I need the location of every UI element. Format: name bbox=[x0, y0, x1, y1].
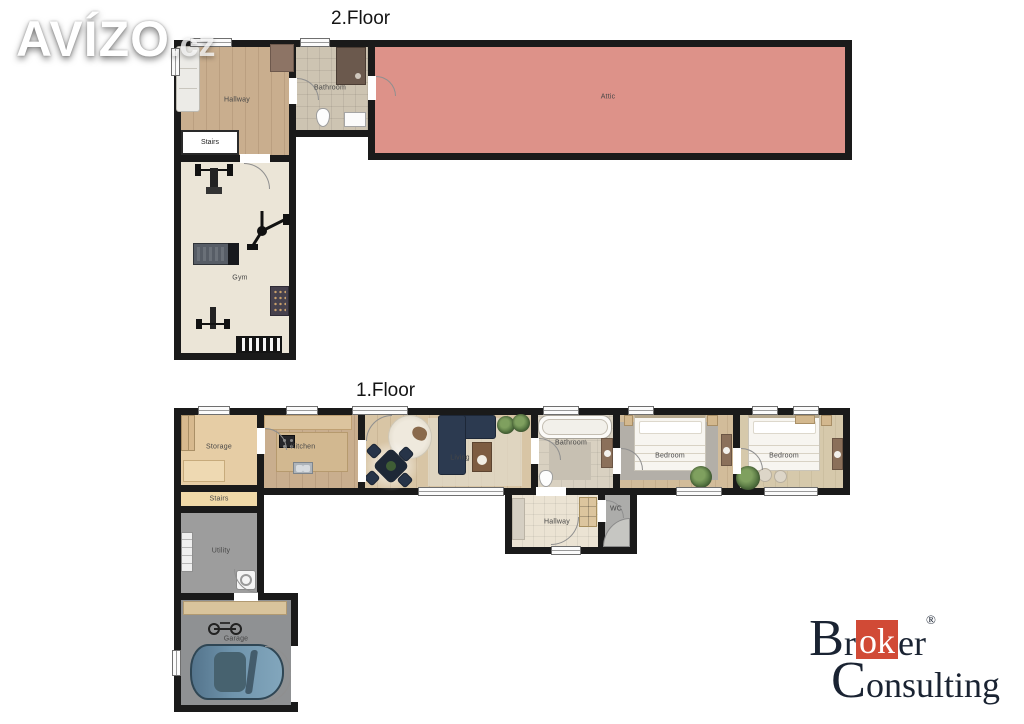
room-label-bathroom-2f: Bathroom bbox=[314, 85, 346, 92]
avizo-watermark-logo: AVÍZO.cz bbox=[16, 10, 215, 68]
window-kitchen-top bbox=[286, 406, 318, 415]
room-label-kitchen: Kitchen bbox=[291, 444, 316, 451]
wall-board-gym-2f bbox=[270, 286, 289, 316]
room-label-bedroom-right: Bedroom bbox=[769, 453, 799, 460]
pouf bbox=[774, 470, 787, 483]
garage-workbench bbox=[183, 601, 287, 615]
coffee-table bbox=[472, 442, 492, 472]
nightstand bbox=[707, 415, 718, 426]
dining-set bbox=[366, 444, 416, 488]
cabinet-storage bbox=[183, 460, 225, 482]
door-opening-bedroom-left bbox=[613, 448, 621, 474]
room-label-stairs-1f: Stairs bbox=[209, 496, 228, 503]
room-label-garage: Garage bbox=[224, 636, 249, 643]
door-opening-storage-kitchen bbox=[257, 428, 265, 454]
room-label-utility: Utility bbox=[212, 548, 231, 555]
broker-text-highlight: ok bbox=[856, 620, 898, 659]
registered-trademark-mark: ® bbox=[926, 612, 936, 627]
opening-kitchen-living bbox=[358, 440, 366, 482]
broker-wordmark-line2: Consulting bbox=[831, 656, 1000, 704]
avizo-suffix-text: .cz bbox=[170, 26, 215, 64]
utility-shelves bbox=[181, 532, 193, 572]
window-storage-top bbox=[198, 406, 230, 415]
room-label-bathroom-1f: Bathroom bbox=[555, 440, 587, 447]
plant-icon bbox=[512, 414, 530, 432]
avizo-brand-text: AVÍZO bbox=[16, 11, 170, 67]
window-bedroom-right-top-1 bbox=[752, 406, 778, 415]
sink-bathroom-2f bbox=[344, 112, 366, 127]
window-bedroom-right-bottom bbox=[764, 487, 818, 496]
window-bathroom-2f-top bbox=[300, 38, 330, 47]
door-opening-utility-garage bbox=[234, 593, 258, 601]
room-label-attic-2f: Attic bbox=[601, 94, 616, 101]
door-opening-hallway-gym-2f bbox=[240, 154, 270, 163]
room-label-storage: Storage bbox=[206, 444, 232, 451]
room-label-bedroom-left: Bedroom bbox=[655, 453, 685, 460]
shelf bbox=[795, 415, 815, 424]
hallway-cabinet bbox=[579, 497, 597, 527]
window-bedroom-left-top bbox=[628, 406, 654, 415]
bath-vanity bbox=[601, 438, 613, 468]
stairs-box-2f: Stairs bbox=[181, 130, 239, 155]
broker-consulting-logo: Broker® Consulting bbox=[809, 614, 1000, 704]
room-label-living: Living bbox=[450, 455, 470, 462]
room-label-wc: WC bbox=[610, 506, 622, 513]
door-opening-hallway-wc bbox=[598, 500, 606, 522]
window-living-top bbox=[352, 406, 408, 415]
nightstand bbox=[821, 415, 832, 426]
window-living-bottom bbox=[418, 487, 504, 496]
kitchen-sink-icon bbox=[293, 462, 313, 474]
gym-weight-station-icon bbox=[194, 160, 234, 198]
bathtub bbox=[538, 415, 612, 439]
gym-cable-machine-icon bbox=[242, 205, 292, 251]
bicycle-icon bbox=[206, 620, 246, 636]
room-label-hallway-1f: Hallway bbox=[544, 519, 570, 526]
hallway-mat bbox=[512, 498, 525, 540]
window-bedroom-left-bottom bbox=[676, 487, 722, 496]
gym-barbell-bench-icon bbox=[196, 303, 230, 333]
floor1-title: 1.Floor bbox=[356, 380, 415, 402]
dresser bbox=[721, 434, 732, 466]
dresser bbox=[832, 438, 843, 470]
stairs-label-2f: Stairs bbox=[201, 139, 219, 146]
garage-double-door-opening bbox=[291, 646, 299, 702]
door-opening-bedroom-right bbox=[733, 448, 741, 474]
room-label-hallway-2f: Hallway bbox=[224, 97, 250, 104]
floorplan-page: 2.Floor Stairs Hallway Bathroom Attic Gy… bbox=[0, 0, 1024, 724]
bed-left bbox=[634, 415, 706, 471]
floor2-title: 2.Floor bbox=[331, 8, 390, 30]
door-opening-living-bathroom bbox=[531, 438, 539, 464]
door-opening-hallway-bathroom-2f bbox=[289, 78, 297, 104]
treadmill-gym-2f bbox=[193, 243, 239, 265]
shower-bathroom-2f bbox=[336, 47, 366, 85]
room-label-gym-2f: Gym bbox=[232, 275, 247, 282]
pouf bbox=[758, 468, 772, 482]
door-opening-hallway-main bbox=[536, 487, 566, 496]
window-bedroom-right-top-2 bbox=[793, 406, 819, 415]
nightstand bbox=[624, 415, 633, 426]
kitchen-counter bbox=[264, 415, 352, 430]
wardrobe-storage bbox=[181, 415, 195, 451]
window-bathroom-1f-top bbox=[543, 406, 579, 415]
bench-gym-2f bbox=[236, 336, 282, 353]
entry-door-hallway-1f-bottom bbox=[551, 546, 581, 555]
cabinet-hallway-2f bbox=[270, 44, 294, 72]
plant-icon bbox=[690, 466, 712, 488]
window-garage-left bbox=[172, 650, 181, 676]
sofa-living-main bbox=[438, 415, 466, 475]
door-opening-bathroom-attic-2f bbox=[368, 76, 376, 100]
